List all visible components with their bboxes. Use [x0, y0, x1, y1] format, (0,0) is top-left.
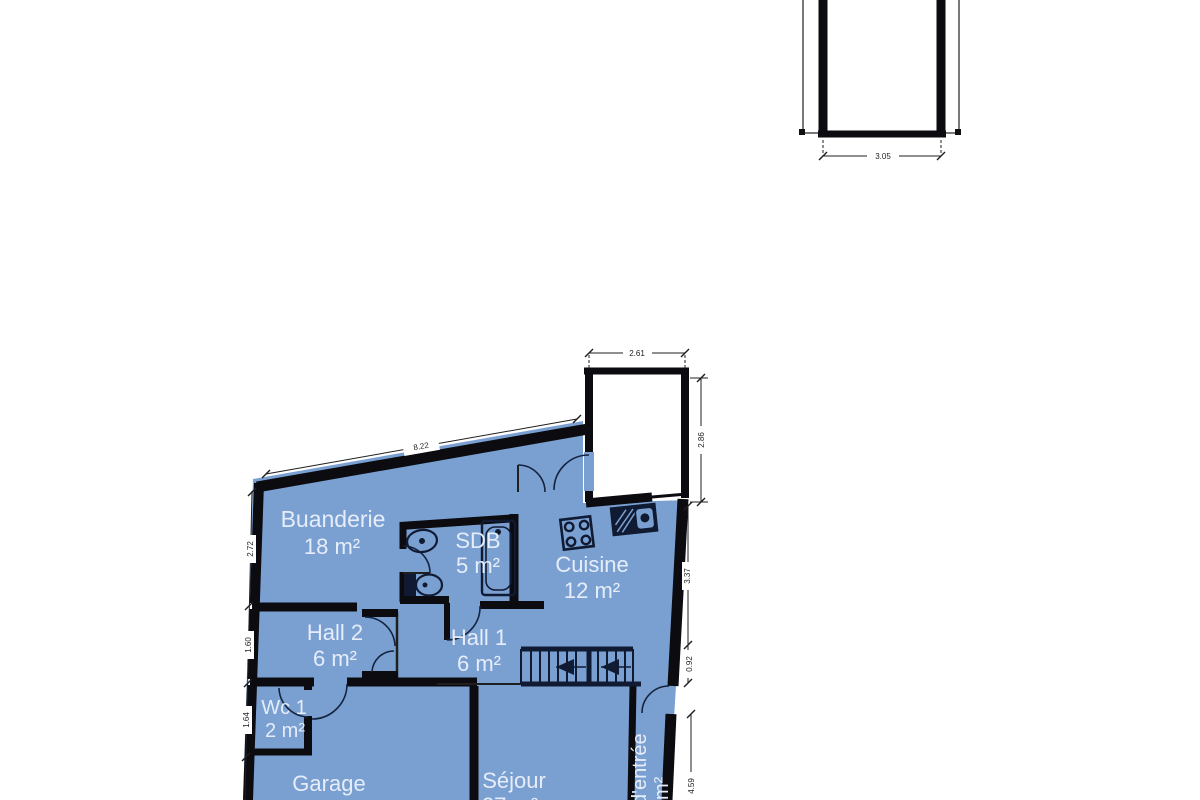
- floor-plan-page: { "plan": { "rooms": [ {"id":"buanderie"…: [0, 0, 1200, 800]
- room-label-hall-entree: d'entrée: [629, 733, 651, 800]
- room-area-buanderie: 18 m²: [304, 534, 360, 559]
- dim-terrace-width: 2.61: [629, 349, 645, 358]
- room-area-wc1: 2 m²: [265, 720, 305, 742]
- vestibule-door1-leaf: [362, 609, 398, 617]
- annex-corner-marker-left: [799, 129, 805, 135]
- room-area-sdb: 5 m²: [456, 553, 500, 578]
- dim-right-2: 0.92: [685, 656, 694, 672]
- dim-left-1: 2.72: [246, 541, 255, 557]
- room-label-buanderie: Buanderie: [281, 506, 386, 532]
- vestibule-door2-leaf: [362, 671, 398, 679]
- floor-plan-svg: 3.05: [0, 0, 1200, 800]
- room-label-hall2: Hall 2: [307, 620, 363, 645]
- dim-terrace-height: 2.86: [697, 432, 706, 448]
- room-area-hall1: 6 m²: [457, 651, 501, 676]
- annex-corner-marker-right: [955, 129, 961, 135]
- dim-annex-width: 3.05: [875, 152, 891, 161]
- terrace-fill: [583, 367, 690, 503]
- kitchen-sink-icon: [611, 504, 658, 535]
- annex-building: 3.05: [799, 0, 961, 162]
- room-label-wc1: Wc 1: [261, 697, 307, 719]
- dim-right-3: 4.59: [687, 778, 696, 794]
- dim-left-2: 1.60: [244, 637, 253, 653]
- room-label-garage: Garage: [292, 771, 365, 796]
- room-label-hall1: Hall 1: [451, 625, 507, 650]
- dim-left-3: 1.64: [242, 712, 251, 728]
- room-area-hall-entree: m²: [651, 776, 673, 800]
- dim-right-1: 3.37: [683, 568, 692, 584]
- hall1-door-leaf: [444, 603, 450, 640]
- room-area-sejour: 27 m²: [482, 793, 538, 800]
- terrace-door-opening: [584, 452, 594, 491]
- room-area-hall2: 6 m²: [313, 646, 357, 671]
- room-area-cuisine: 12 m²: [564, 578, 620, 603]
- wall-under-terrace: [586, 497, 652, 503]
- room-label-cuisine: Cuisine: [555, 552, 628, 577]
- terrace: [583, 367, 690, 503]
- room-label-sejour: Séjour: [482, 768, 546, 793]
- room-label-sdb: SDB: [455, 528, 500, 553]
